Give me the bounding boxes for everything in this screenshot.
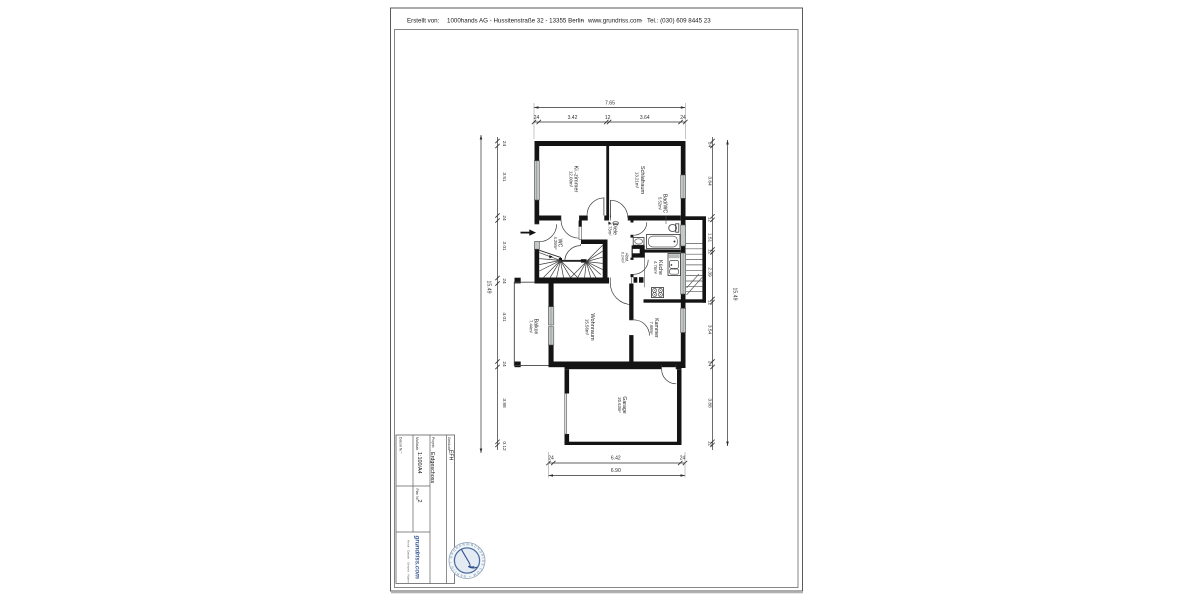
svg-text:15.56m²: 15.56m²	[585, 319, 590, 336]
svg-text:3.01: 3.01	[501, 241, 507, 251]
svg-text:1.51: 1.51	[707, 233, 713, 243]
svg-text:24: 24	[534, 115, 540, 121]
svg-text:13.21m²: 13.21m²	[635, 172, 640, 189]
svg-text:www.grundriss.com: www.grundriss.com	[587, 18, 642, 25]
svg-text:1000hands AG - Hussitenstraße: 1000hands AG - Hussitenstraße 32 - 13355…	[447, 18, 584, 25]
svg-text:-: -	[641, 18, 643, 25]
svg-text:6.90: 6.90	[611, 468, 621, 474]
svg-text:2.39: 2.39	[707, 267, 713, 277]
svg-text:1:100/A4: 1:100/A4	[416, 452, 422, 474]
svg-text:0.24m²: 0.24m²	[621, 252, 625, 264]
svg-text:12.00m²: 12.00m²	[568, 171, 573, 188]
svg-text:15.49: 15.49	[732, 288, 738, 301]
svg-text:Erstellt von:: Erstellt von:	[407, 18, 440, 25]
svg-text:Gebäude: Gebäude	[447, 437, 451, 451]
svg-text:24: 24	[548, 456, 554, 462]
svg-text:12: 12	[707, 300, 713, 306]
svg-text:Erdgeschoss: Erdgeschoss	[429, 452, 435, 483]
svg-text:24: 24	[707, 142, 713, 148]
svg-text:Maßstab: Maßstab	[415, 437, 419, 450]
svg-text:grundriss.com: grundriss.com	[414, 535, 421, 580]
svg-text:15.49: 15.49	[486, 281, 492, 294]
svg-text:3.51: 3.51	[501, 172, 507, 182]
svg-text:EFH: EFH	[447, 450, 453, 461]
svg-text:Datum Nr.: Datum Nr.	[399, 437, 403, 452]
svg-text:3.42: 3.42	[568, 115, 578, 121]
svg-text:4.76m²: 4.76m²	[653, 261, 658, 275]
svg-text:Projekt: Projekt	[431, 437, 435, 448]
svg-text:3.54: 3.54	[707, 325, 713, 335]
svg-text:6.42: 6.42	[611, 456, 621, 462]
svg-text:7.65: 7.65	[605, 101, 615, 107]
svg-text:4.73m²: 4.73m²	[608, 222, 613, 236]
svg-text:24: 24	[707, 361, 713, 367]
svg-text:20.63m²: 20.63m²	[617, 397, 622, 413]
svg-text:12: 12	[605, 115, 611, 121]
svg-text:24: 24	[501, 215, 507, 221]
svg-text:24: 24	[501, 141, 507, 147]
svg-text:24: 24	[501, 361, 507, 367]
svg-text:12: 12	[707, 217, 713, 223]
svg-text:4.01: 4.01	[501, 312, 507, 322]
svg-text:12: 12	[707, 441, 713, 447]
svg-text:3.88: 3.88	[501, 398, 507, 408]
svg-text:4.29m²: 4.29m²	[553, 236, 558, 250]
svg-text:3.64: 3.64	[707, 176, 713, 186]
svg-text:3.64: 3.64	[640, 115, 650, 121]
svg-text:12: 12	[707, 249, 713, 255]
svg-text:24: 24	[680, 456, 686, 462]
svg-text:24: 24	[501, 278, 507, 284]
svg-text:Tel.: (030) 609 8445 23: Tel.: (030) 609 8445 23	[647, 18, 711, 25]
svg-text:3.88: 3.88	[707, 398, 713, 408]
svg-text:5.52m²: 5.52m²	[658, 197, 663, 211]
svg-text:0.12: 0.12	[501, 441, 507, 451]
svg-text:7.44m²: 7.44m²	[529, 320, 534, 334]
svg-text:-: -	[581, 18, 583, 25]
svg-text:7.68m²: 7.68m²	[649, 321, 654, 335]
svg-text:24: 24	[680, 115, 686, 121]
svg-text:Anruf · Datum · Uhrzeit · Name: Anruf · Datum · Uhrzeit · Name	[407, 540, 411, 583]
svg-text:2: 2	[416, 500, 422, 503]
